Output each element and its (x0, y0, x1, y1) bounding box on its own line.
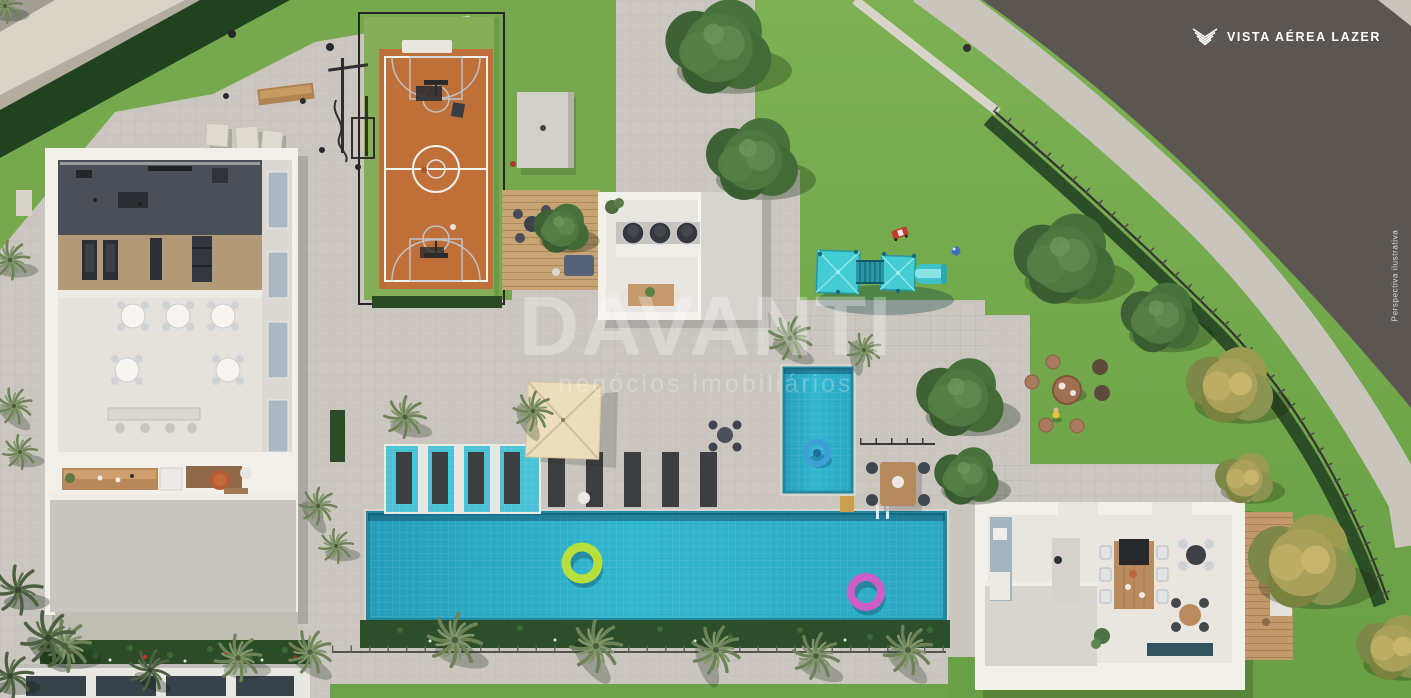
hoop-backboard (424, 80, 448, 85)
view-title: VISTA AÉREA LAZER (1192, 26, 1381, 48)
playground-tower-small (880, 255, 915, 290)
basketball-court (359, 13, 504, 308)
sun-shelf-loungers (385, 445, 540, 513)
dining-table (1100, 539, 1168, 609)
playground-slide (915, 264, 947, 284)
barbecue-kiosk (598, 192, 771, 328)
water-feature (1147, 643, 1213, 656)
aerial-render-page: VISTA AÉREA LAZER DAVANTI negócios imobi… (0, 0, 1411, 698)
concrete-bench (16, 190, 32, 216)
gym-room (58, 160, 262, 235)
daybed (564, 255, 594, 276)
pool-hedge-walk (332, 620, 950, 652)
roof-slab (50, 500, 296, 612)
cardio-room (58, 235, 262, 290)
gourmet-pavilion (975, 502, 1253, 698)
kitchen-island (1052, 538, 1080, 602)
court-hedge (372, 296, 502, 308)
playground-bridge (856, 261, 884, 283)
storage-slab (510, 92, 576, 175)
ball (952, 247, 961, 256)
playground-tower-large (816, 250, 859, 293)
buffet-counter (108, 408, 200, 420)
leisure-area-render (0, 0, 1411, 698)
basketball (421, 167, 427, 173)
view-title-text: VISTA AÉREA LAZER (1227, 30, 1381, 44)
shade-sail (526, 382, 618, 468)
kids-pool (780, 364, 856, 496)
grill-domes (622, 222, 698, 244)
perspective-disclaimer: Perspectiva ilustrativa (1391, 211, 1400, 341)
chevron-emblem-icon (1192, 26, 1218, 48)
grass-strip-bottom (330, 684, 948, 698)
fitness-center-building (16, 148, 310, 668)
